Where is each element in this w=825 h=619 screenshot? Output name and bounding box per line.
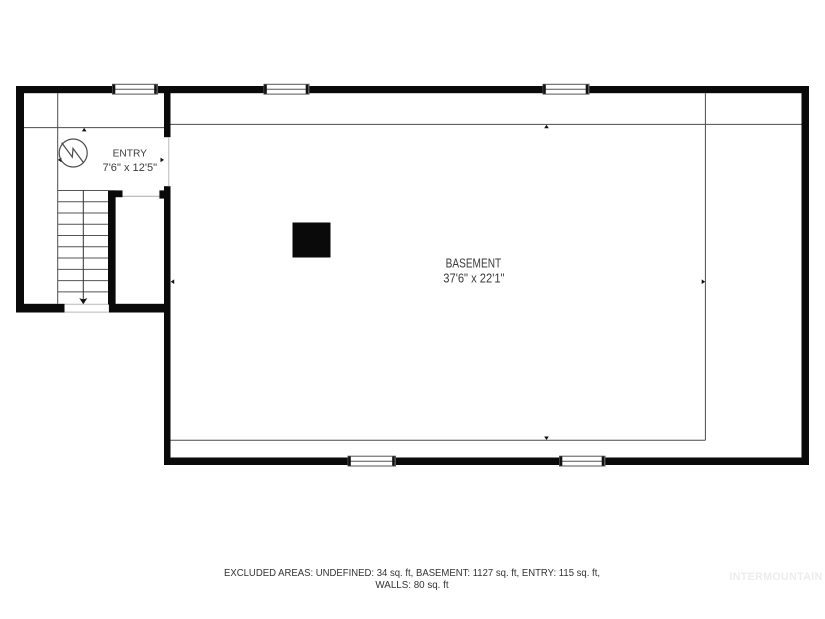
svg-text:BASEMENT: BASEMENT [446,256,502,270]
svg-text:ENTRY: ENTRY [113,149,148,160]
svg-text:INTERMOUNTAIN: INTERMOUNTAIN [729,571,822,583]
svg-text:37'6" x 22'1": 37'6" x 22'1" [443,271,504,285]
svg-text:7'6" x 12'5": 7'6" x 12'5" [103,162,158,174]
svg-text:EXCLUDED AREAS: UNDEFINED: 34: EXCLUDED AREAS: UNDEFINED: 34 sq. ft, BA… [224,568,600,579]
svg-text:WALLS: 80 sq. ft: WALLS: 80 sq. ft [375,580,448,591]
